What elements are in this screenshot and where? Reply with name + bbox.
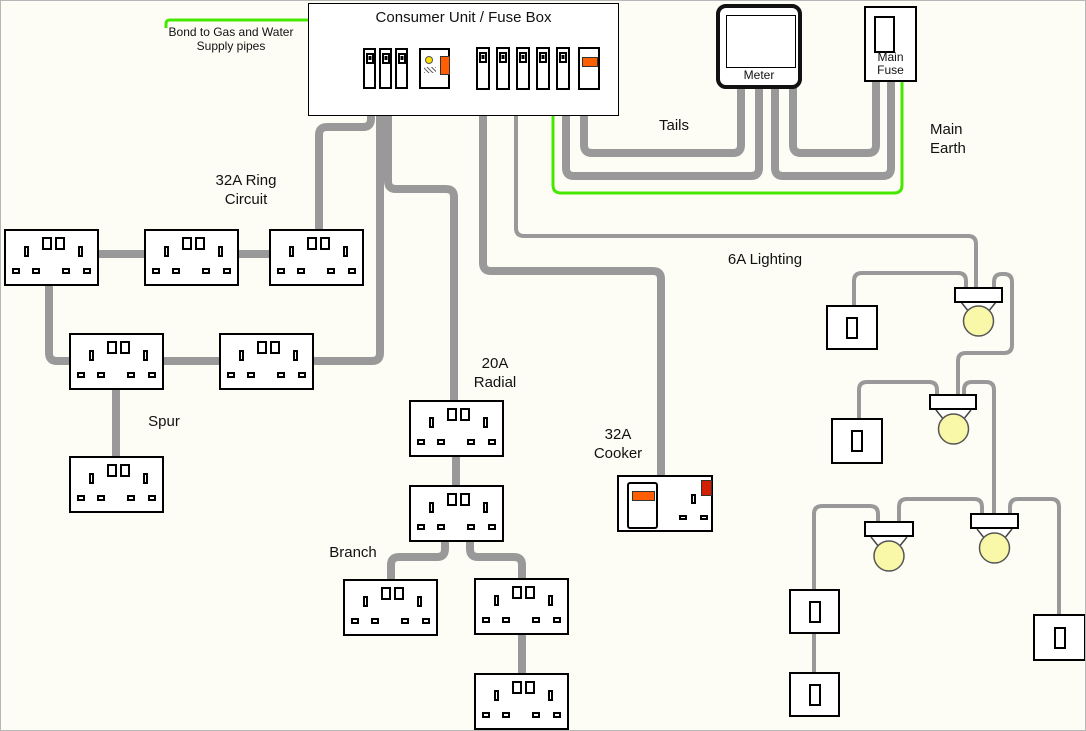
socket-slot xyxy=(120,341,130,354)
consumer-unit-title: Consumer Unit / Fuse Box xyxy=(309,9,618,26)
socket-slot xyxy=(512,681,522,694)
socket-slot xyxy=(447,493,457,506)
socket-slot xyxy=(293,350,298,361)
socket-slot xyxy=(343,246,348,257)
branch-wire-right xyxy=(470,541,522,579)
mcb-breaker xyxy=(476,47,490,90)
socket-slot xyxy=(502,617,510,623)
meter-label: Meter xyxy=(720,68,798,82)
double-socket-branch-left xyxy=(343,579,438,636)
socket-slot xyxy=(691,494,696,504)
ceiling-rose-4 xyxy=(970,513,1019,529)
cooker-feed-wire xyxy=(483,116,661,476)
socket-slot xyxy=(437,524,445,530)
socket-slot xyxy=(24,246,29,257)
socket-slot xyxy=(460,493,470,506)
socket-slot xyxy=(363,596,368,607)
socket-slot xyxy=(202,268,210,274)
socket-slot xyxy=(257,341,267,354)
light-bulb xyxy=(939,414,969,444)
ring-feed-wire xyxy=(319,116,371,230)
socket-slot xyxy=(83,268,91,274)
socket-slot xyxy=(532,617,540,623)
socket-slot xyxy=(488,524,496,530)
socket-slot xyxy=(482,712,490,718)
mcb-breaker xyxy=(516,47,530,90)
socket-slot xyxy=(467,524,475,530)
socket-slot xyxy=(488,439,496,445)
socket-slot xyxy=(62,268,70,274)
lighting-label: 6A Lighting xyxy=(728,250,802,269)
socket-slot xyxy=(42,237,52,250)
light-switch-2 xyxy=(831,418,883,464)
socket-slot xyxy=(460,408,470,421)
socket-slot xyxy=(227,372,235,378)
socket-slot xyxy=(417,439,425,445)
bonding-label: Bond to Gas and Water Supply pipes xyxy=(169,25,294,53)
socket-slot xyxy=(195,237,205,250)
socket-slot xyxy=(401,618,409,624)
fuse-cartridge xyxy=(874,16,895,53)
double-socket-ring-4 xyxy=(69,333,164,390)
double-socket-branch-end xyxy=(474,673,569,730)
socket-slot xyxy=(297,268,305,274)
socket-slot xyxy=(89,350,94,361)
socket-slot xyxy=(77,495,85,501)
socket-slot xyxy=(351,618,359,624)
socket-slot xyxy=(494,690,499,701)
mcb-breaker xyxy=(395,48,408,89)
socket-slot xyxy=(679,515,687,520)
ceiling-rose-1 xyxy=(954,287,1003,303)
wiring-diagram: Consumer Unit / Fuse Box Meter Main Fuse xyxy=(0,0,1086,731)
socket-slot xyxy=(447,408,457,421)
tail-wire xyxy=(793,81,876,153)
socket-slot xyxy=(127,372,135,378)
socket-slot xyxy=(218,246,223,257)
two-way-switch-a xyxy=(789,589,840,634)
socket-slot xyxy=(223,268,231,274)
socket-slot xyxy=(120,464,130,477)
socket-slot xyxy=(429,502,434,513)
cooker-control-unit xyxy=(617,475,713,532)
socket-slot xyxy=(247,372,255,378)
double-socket-branch-right xyxy=(474,578,569,635)
cooker-switch-rocker xyxy=(632,491,655,501)
mcb-breaker xyxy=(556,47,570,90)
socket-slot xyxy=(494,595,499,606)
socket-slot xyxy=(429,417,434,428)
rcd-switch xyxy=(440,56,450,75)
main-earth-label: Main Earth xyxy=(930,120,966,158)
socket-slot xyxy=(371,618,379,624)
socket-slot xyxy=(348,268,356,274)
double-socket-ring-5 xyxy=(219,333,314,390)
socket-slot xyxy=(127,495,135,501)
light-switch-1 xyxy=(826,305,878,350)
socket-slot xyxy=(107,341,117,354)
mcb-breaker xyxy=(496,47,510,90)
socket-slot xyxy=(548,690,553,701)
ceiling-rose-3 xyxy=(864,521,914,537)
socket-slot xyxy=(394,587,404,600)
socket-slot xyxy=(512,586,522,599)
light-bulb xyxy=(964,306,994,336)
socket-slot xyxy=(327,268,335,274)
double-socket-ring-3 xyxy=(269,229,364,286)
main-fuse-label: Main Fuse xyxy=(866,51,915,77)
socket-slot xyxy=(553,617,561,623)
double-socket-ring-2 xyxy=(144,229,239,286)
lighting-wire xyxy=(814,506,878,589)
socket-slot xyxy=(307,237,317,250)
socket-slot xyxy=(164,246,169,257)
socket-slot xyxy=(483,417,488,428)
socket-slot xyxy=(270,341,280,354)
rcd-hatch xyxy=(424,67,436,73)
cooker-label: 32A Cooker xyxy=(594,425,642,463)
socket-slot xyxy=(548,595,553,606)
socket-slot xyxy=(467,439,475,445)
socket-slot xyxy=(148,372,156,378)
socket-slot xyxy=(89,473,94,484)
double-socket-radial-1 xyxy=(409,400,504,457)
socket-slot xyxy=(32,268,40,274)
two-way-switch-b xyxy=(789,672,840,717)
socket-slot xyxy=(182,237,192,250)
socket-slot xyxy=(320,237,330,250)
radial-feed-wire xyxy=(388,116,454,401)
electricity-meter: Meter xyxy=(716,4,802,89)
socket-slot xyxy=(77,372,85,378)
ceiling-rose-2 xyxy=(929,394,977,410)
double-socket-ring-1 xyxy=(4,229,99,286)
mcb-breaker xyxy=(363,48,376,89)
socket-slot xyxy=(289,246,294,257)
mcb-breaker xyxy=(536,47,550,90)
socket-slot xyxy=(148,495,156,501)
socket-slot xyxy=(437,439,445,445)
socket-slot xyxy=(532,712,540,718)
socket-slot xyxy=(12,268,20,274)
rcd-module xyxy=(419,48,450,89)
meter-display xyxy=(726,15,796,68)
socket-slot xyxy=(55,237,65,250)
main-switch-rocker xyxy=(582,57,598,67)
lighting-wire xyxy=(859,382,937,419)
socket-slot xyxy=(422,618,430,624)
lighting-wire xyxy=(854,273,966,306)
socket-slot xyxy=(381,587,391,600)
socket-slot xyxy=(172,268,180,274)
socket-slot xyxy=(417,524,425,530)
socket-slot xyxy=(277,268,285,274)
branch-label: Branch xyxy=(329,543,377,562)
rcd-test-button xyxy=(425,56,433,64)
socket-slot xyxy=(525,586,535,599)
socket-slot xyxy=(78,246,83,257)
tails-label: Tails xyxy=(659,116,689,135)
main-fuse: Main Fuse xyxy=(864,6,917,82)
double-socket-spur xyxy=(69,456,164,513)
socket-slot xyxy=(152,268,160,274)
cooker-indicator-light xyxy=(701,480,712,496)
light-bulb xyxy=(874,541,904,571)
consumer-unit: Consumer Unit / Fuse Box xyxy=(308,3,619,116)
socket-slot xyxy=(417,596,422,607)
light-switch-4 xyxy=(1033,614,1086,661)
light-bulb xyxy=(980,533,1010,563)
radial-label: 20A Radial xyxy=(474,354,517,392)
socket-slot xyxy=(482,617,490,623)
socket-slot xyxy=(525,681,535,694)
socket-slot xyxy=(239,350,244,361)
socket-slot xyxy=(483,502,488,513)
socket-slot xyxy=(143,350,148,361)
branch-wire-left xyxy=(391,541,445,580)
socket-slot xyxy=(107,464,117,477)
socket-slot xyxy=(277,372,285,378)
spur-label: Spur xyxy=(148,412,180,431)
socket-slot xyxy=(298,372,306,378)
socket-slot xyxy=(700,515,708,520)
socket-slot xyxy=(502,712,510,718)
mcb-breaker xyxy=(379,48,392,89)
double-socket-radial-2 xyxy=(409,485,504,542)
socket-slot xyxy=(143,473,148,484)
socket-slot xyxy=(97,372,105,378)
socket-slot xyxy=(97,495,105,501)
ring-circuit-label: 32A Ring Circuit xyxy=(216,171,277,209)
cooker-switch xyxy=(627,482,658,529)
main-switch-module xyxy=(578,47,600,90)
socket-slot xyxy=(553,712,561,718)
ring-wire xyxy=(49,285,70,361)
